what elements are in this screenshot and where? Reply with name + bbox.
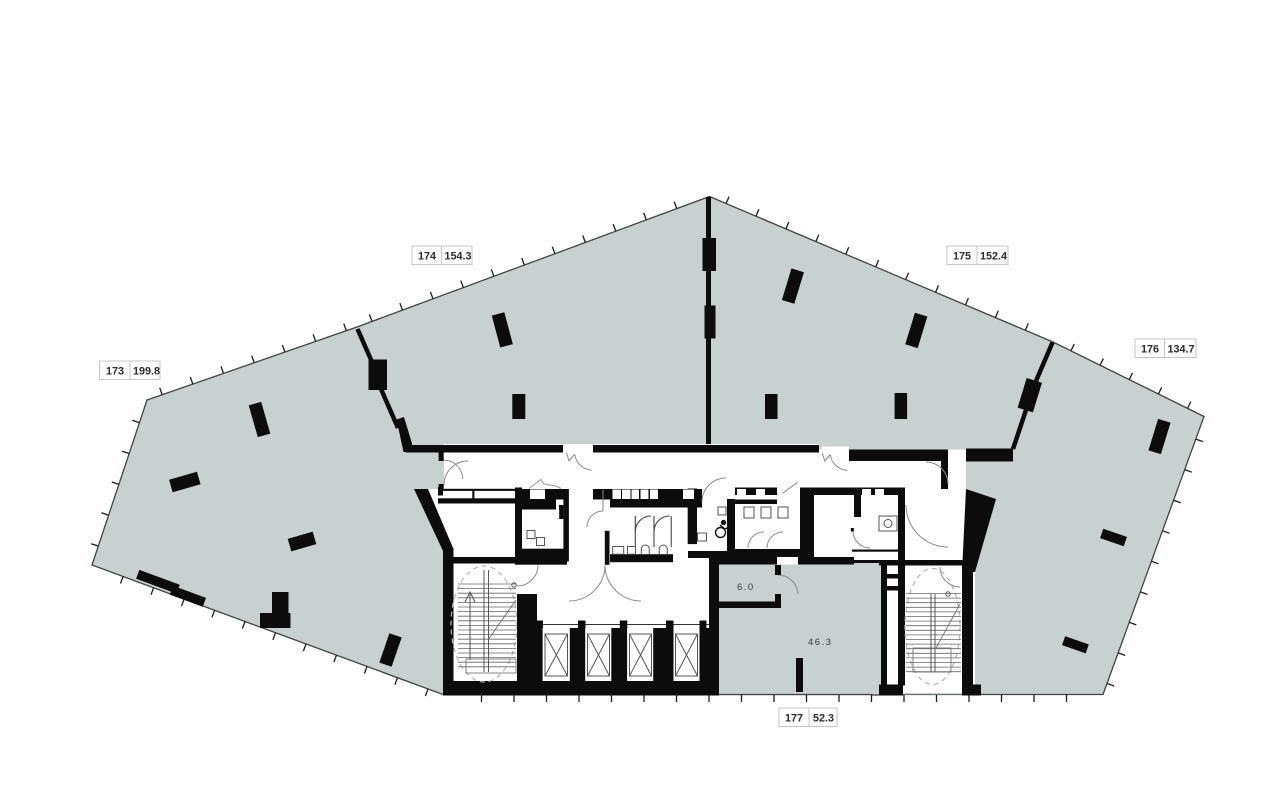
svg-text:177: 177 <box>785 713 803 725</box>
svg-text:173: 173 <box>106 366 124 378</box>
svg-text:46.3: 46.3 <box>808 637 833 648</box>
svg-text:52.3: 52.3 <box>813 713 834 725</box>
svg-text:152.4: 152.4 <box>980 251 1007 263</box>
svg-text:175: 175 <box>953 251 971 263</box>
svg-text:174: 174 <box>418 251 436 263</box>
svg-text:176: 176 <box>1141 344 1159 356</box>
svg-text:199.8: 199.8 <box>133 366 160 378</box>
svg-text:154.3: 154.3 <box>445 251 472 263</box>
svg-text:134.7: 134.7 <box>1168 344 1195 356</box>
svg-text:6.0: 6.0 <box>737 582 755 593</box>
